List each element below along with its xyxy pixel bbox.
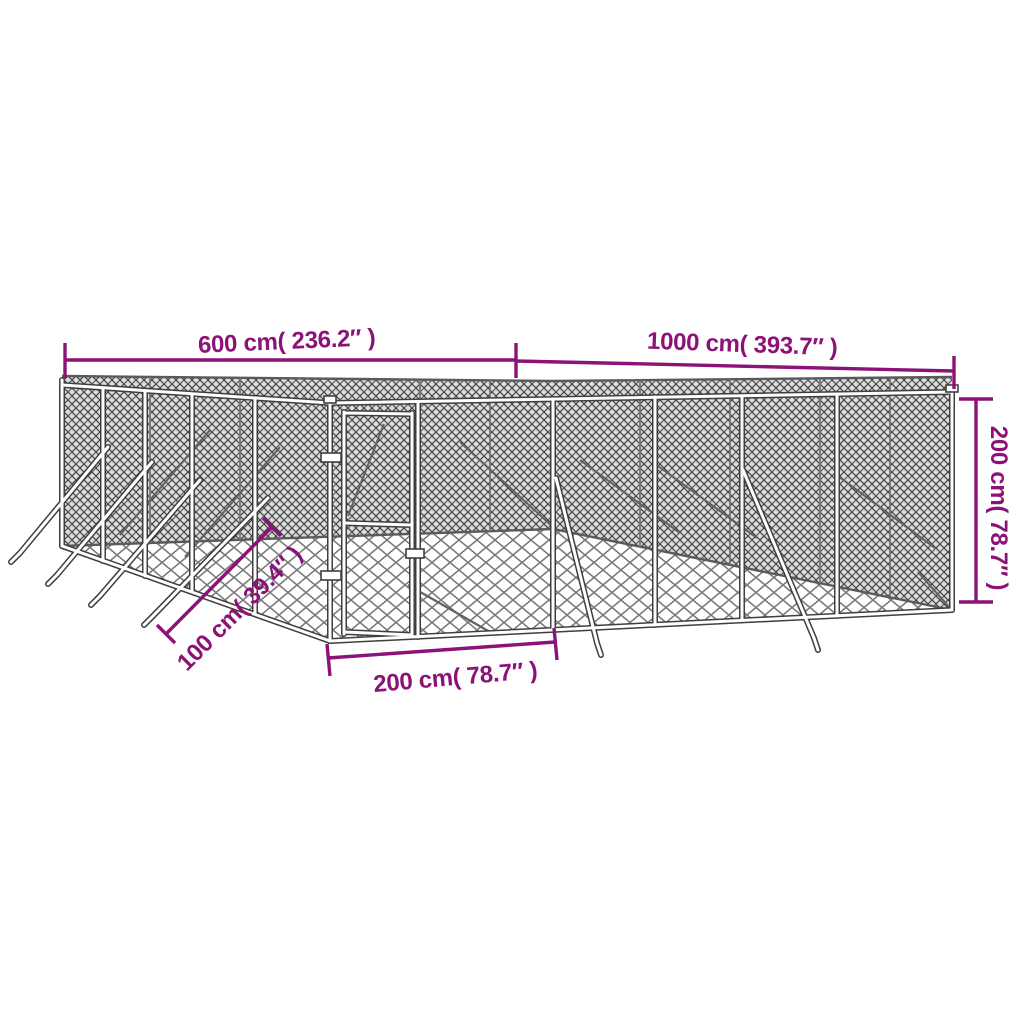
dimension-label-gate-width: 200 cm( 78.7″ ) <box>372 657 538 698</box>
gate-hinge-bottom <box>321 571 341 580</box>
corner-post-cap-right <box>946 385 958 392</box>
dimension-height: 200 cm( 78.7″ ) <box>959 399 1012 602</box>
dimension-label-height: 200 cm( 78.7″ ) <box>985 426 1012 590</box>
dimension-label-side-length: 1000 cm( 393.7″ ) <box>647 328 838 362</box>
gate-latch <box>406 549 424 558</box>
chain-link-mesh <box>62 376 952 641</box>
kennel-dimension-diagram: 600 cm( 236.2″ ) 1000 cm( 393.7″ ) 200 c… <box>0 0 1024 1024</box>
product-image: 600 cm( 236.2″ ) 1000 cm( 393.7″ ) 200 c… <box>0 0 1024 1024</box>
corner-post-cap-near <box>324 396 336 403</box>
gate-hinge-top <box>321 453 341 462</box>
dimension-label-front-width: 600 cm( 236.2″ ) <box>197 324 375 359</box>
dimension-front-width: 600 cm( 236.2″ ) <box>65 324 516 378</box>
